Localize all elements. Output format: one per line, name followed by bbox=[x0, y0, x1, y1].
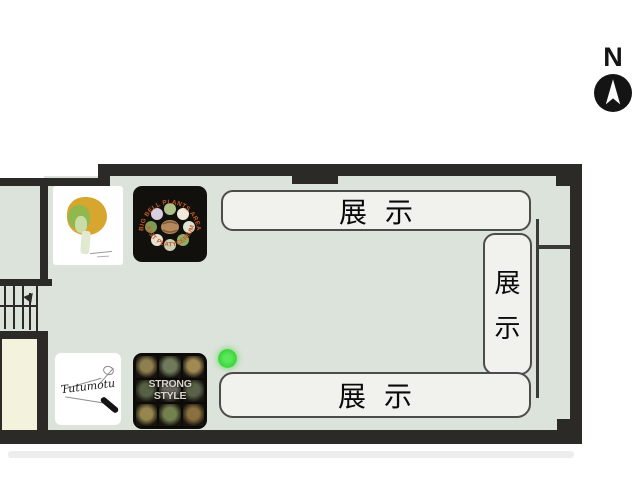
wall-right bbox=[570, 164, 582, 444]
stair-tread bbox=[13, 286, 15, 329]
exhibit-zone-top-label: 展示 bbox=[321, 191, 431, 231]
plant-portrait-signature bbox=[90, 251, 112, 254]
wall-beige-room-left bbox=[0, 339, 2, 430]
plant-thumbnail bbox=[159, 404, 180, 426]
plant-thumbnail bbox=[136, 356, 157, 378]
wall-corner-bottom-right bbox=[557, 419, 573, 432]
wall-corner-top-right bbox=[556, 175, 572, 186]
current-position-marker bbox=[218, 349, 237, 368]
wall-beam-segment bbox=[292, 175, 338, 184]
artwork-plant-portrait-card bbox=[53, 186, 123, 265]
big-bell-badge-graphic: BIG BELL PLANTS AREA JUST PLATYCERIUM bbox=[133, 186, 207, 262]
plan-shadow bbox=[8, 451, 574, 458]
plant-portrait-body bbox=[80, 231, 91, 255]
stair-tread bbox=[4, 286, 6, 329]
sketch-scribble bbox=[102, 364, 115, 376]
plant-thumbnail bbox=[183, 356, 204, 378]
exhibit-zone-right-char2: 示 bbox=[494, 308, 520, 345]
wall-top bbox=[98, 164, 582, 176]
exhibit-zone-bottom-label: 展示 bbox=[320, 375, 430, 415]
poster-big-bell-plants: BIG BELL PLANTS AREA JUST PLATYCERIUM bbox=[133, 186, 207, 262]
wall-partition-tick bbox=[539, 245, 570, 249]
plant-thumbnail bbox=[159, 356, 180, 378]
plant-portrait-signature bbox=[97, 256, 109, 258]
exhibit-zone-top: 展示 bbox=[221, 190, 531, 231]
north-arrow-icon bbox=[601, 78, 625, 108]
poster-strong-style: STRONG STYLE bbox=[133, 353, 207, 429]
artwork-tutumotu-card: Tutumotu bbox=[55, 353, 121, 425]
stair-tread bbox=[36, 286, 38, 333]
floor-plan: N 展示 展 示 展示 bbox=[0, 0, 642, 490]
side-room bbox=[2, 339, 37, 430]
exhibit-zone-right: 展 示 bbox=[483, 233, 532, 375]
north-compass-icon bbox=[594, 74, 632, 112]
north-label: N bbox=[593, 42, 633, 73]
wall-stair-divider bbox=[40, 186, 48, 281]
plant-thumbnail bbox=[183, 404, 204, 426]
stair-tread bbox=[22, 286, 24, 329]
exhibit-zone-right-char1: 展 bbox=[494, 263, 520, 300]
tutumotu-signature-text: Tutumotu bbox=[57, 376, 118, 396]
plant-thumbnail bbox=[136, 404, 157, 426]
exhibit-zone-bottom: 展示 bbox=[219, 372, 531, 418]
strong-style-title: STRONG STYLE bbox=[133, 378, 207, 402]
brush-stroke bbox=[100, 396, 120, 414]
wall-bottom bbox=[0, 430, 582, 444]
stair-landing-edge bbox=[0, 279, 52, 286]
stair-mid-line bbox=[0, 305, 38, 307]
wall-top-left bbox=[0, 178, 106, 186]
wall-beige-room-right bbox=[37, 331, 48, 430]
